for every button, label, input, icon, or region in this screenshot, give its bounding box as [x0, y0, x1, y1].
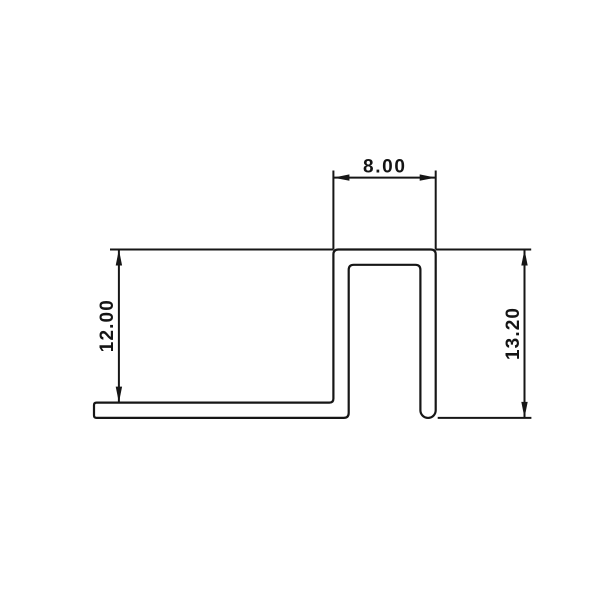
svg-text:13.20: 13.20 — [503, 308, 524, 360]
svg-text:8.00: 8.00 — [363, 157, 405, 178]
svg-text:12.00: 12.00 — [97, 300, 118, 352]
